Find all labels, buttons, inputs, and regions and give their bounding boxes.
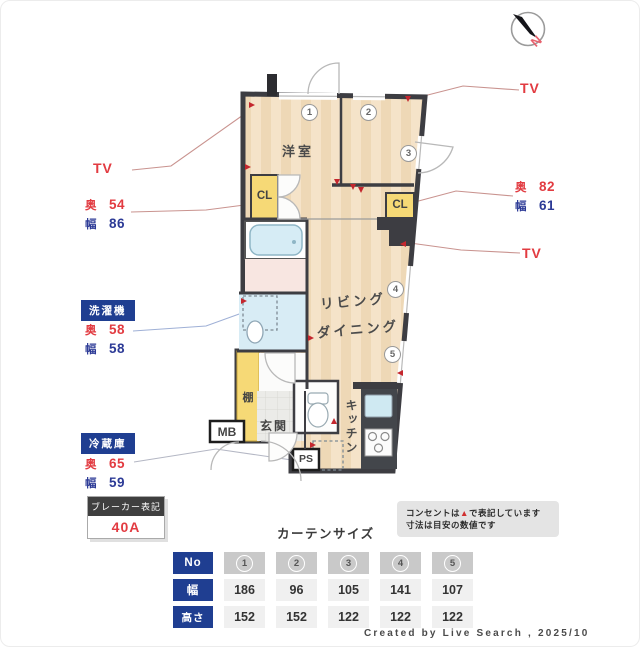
floor-plan-page: N 洋室 リビング ダイニング キッチン 玄関 棚 CL CL MB PS 1 … (0, 0, 640, 647)
depth-value: 82 (539, 179, 555, 194)
width-value: 86 (109, 216, 125, 231)
closet-right-dimensions: 奥 82 幅 61 (515, 179, 555, 214)
note-line-2: 寸法は目安の数値です (406, 519, 550, 531)
outlet-note-box: コンセントは▲で表記しています 寸法は目安の数値です (397, 501, 559, 537)
pillar (267, 74, 277, 96)
room-label-kitchen: キッチン (343, 399, 360, 455)
width-row: 幅 58 (85, 341, 125, 357)
table-cell-height-3: 122 (328, 606, 369, 628)
line-closet-left (131, 204, 252, 212)
washroom-floor (239, 293, 307, 351)
entrance-door-small (211, 442, 239, 470)
table-cell-height-4: 122 (380, 606, 421, 628)
fridge-dimensions: 奥 65 幅 59 (85, 456, 125, 491)
width-label: 幅 (515, 198, 529, 214)
bathtub-drain (292, 240, 296, 244)
closet-right-label: CL (387, 199, 413, 211)
credit-text: Created by Live Search , 2025/10 (364, 628, 590, 639)
circled-number: 4 (392, 555, 409, 572)
circled-number: 1 (236, 555, 253, 572)
table-row-header-no: No (173, 552, 213, 574)
note-text: で表記しています (469, 508, 541, 518)
width-label: 幅 (85, 341, 99, 357)
table-cell-width-5: 107 (432, 579, 473, 601)
fridge-badge: 冷蔵庫 (81, 433, 135, 454)
table-cell-width-1: 186 (224, 579, 265, 601)
depth-value: 65 (109, 456, 125, 471)
kitchen-sink (365, 395, 392, 417)
line-tv-right-top (412, 86, 519, 99)
bathroom-floor (245, 259, 307, 293)
table-col-header-5: 5 (432, 552, 473, 574)
table-cell-width-4: 141 (380, 579, 421, 601)
depth-row: 奥 58 (85, 322, 125, 338)
circled-number: 2 (288, 555, 305, 572)
pipe-space-label: PS (293, 453, 319, 465)
tv-annotation-right-mid: TV (522, 245, 542, 261)
depth-value: 54 (109, 197, 125, 212)
table-col-header-1: 1 (224, 552, 265, 574)
breaker-title: ブレーカー表記 (88, 497, 164, 516)
closet-left-label: CL (252, 190, 277, 202)
depth-value: 58 (109, 322, 125, 337)
width-row: 幅 86 (85, 216, 125, 232)
window-number-5: 5 (384, 346, 401, 363)
table-cell-height-1: 152 (224, 606, 265, 628)
washer-dimensions: 奥 58 幅 58 (85, 322, 125, 357)
line-tv-left (132, 108, 253, 170)
depth-row: 奥 54 (85, 197, 125, 213)
bathtub (250, 225, 302, 255)
width-value: 61 (539, 198, 555, 213)
table-row-header-width: 幅 (173, 579, 213, 601)
table-col-header-3: 3 (328, 552, 369, 574)
width-value: 58 (109, 341, 125, 356)
width-row: 幅 61 (515, 198, 555, 214)
note-line-1: コンセントは▲で表記しています (406, 507, 550, 519)
window-number-1: 1 (301, 104, 318, 121)
balcony-door (308, 63, 339, 94)
width-row: 幅 59 (85, 475, 125, 491)
depth-row: 奥 65 (85, 456, 125, 472)
depth-label: 奥 (85, 456, 99, 472)
room-label-shelf: 棚 (241, 389, 255, 405)
depth-label: 奥 (85, 197, 99, 213)
room-label-entrance: 玄関 (249, 417, 299, 434)
meter-box-label: MB (210, 425, 244, 439)
outlet-marker-glyph: ▲ (460, 508, 469, 518)
circled-number: 5 (444, 555, 461, 572)
table-cell-width-3: 105 (328, 579, 369, 601)
width-label: 幅 (85, 475, 99, 491)
breaker-box: ブレーカー表記 40A (87, 496, 165, 539)
room-label-bedroom: 洋室 (269, 141, 327, 160)
width-label: 幅 (85, 216, 99, 232)
table-cell-height-2: 152 (276, 606, 317, 628)
washbasin (247, 321, 263, 343)
curtain-table-title: カーテンサイズ (277, 523, 375, 542)
tv-annotation-left: TV (93, 160, 113, 176)
width-value: 59 (109, 475, 125, 490)
window-number-4: 4 (387, 281, 404, 298)
toilet-bowl (308, 403, 328, 427)
breaker-value: 40A (88, 516, 164, 538)
table-cell-height-5: 122 (432, 606, 473, 628)
toilet-tank (308, 393, 328, 404)
closet-left-dimensions: 奥 54 幅 86 (85, 197, 125, 232)
compass: N (512, 13, 545, 50)
table-row-header-height: 高さ (173, 606, 213, 628)
depth-label: 奥 (515, 179, 529, 195)
line-closet-right (411, 191, 513, 203)
line-washer (133, 309, 253, 331)
curtain-size-table: No 1 2 3 4 5 幅 186 96 105 141 107 高さ 152… (173, 552, 473, 628)
circled-number: 3 (340, 555, 357, 572)
tv-annotation-right-top: TV (520, 80, 540, 96)
table-col-header-2: 2 (276, 552, 317, 574)
table-cell-width-2: 96 (276, 579, 317, 601)
line-tv-right-mid (410, 243, 520, 253)
depth-row: 奥 82 (515, 179, 555, 195)
table-col-header-4: 4 (380, 552, 421, 574)
washer-badge: 洗濯機 (81, 300, 135, 321)
note-text: コンセントは (406, 508, 460, 518)
window-number-3: 3 (400, 145, 417, 162)
window-number-2: 2 (360, 104, 377, 121)
depth-label: 奥 (85, 322, 99, 338)
